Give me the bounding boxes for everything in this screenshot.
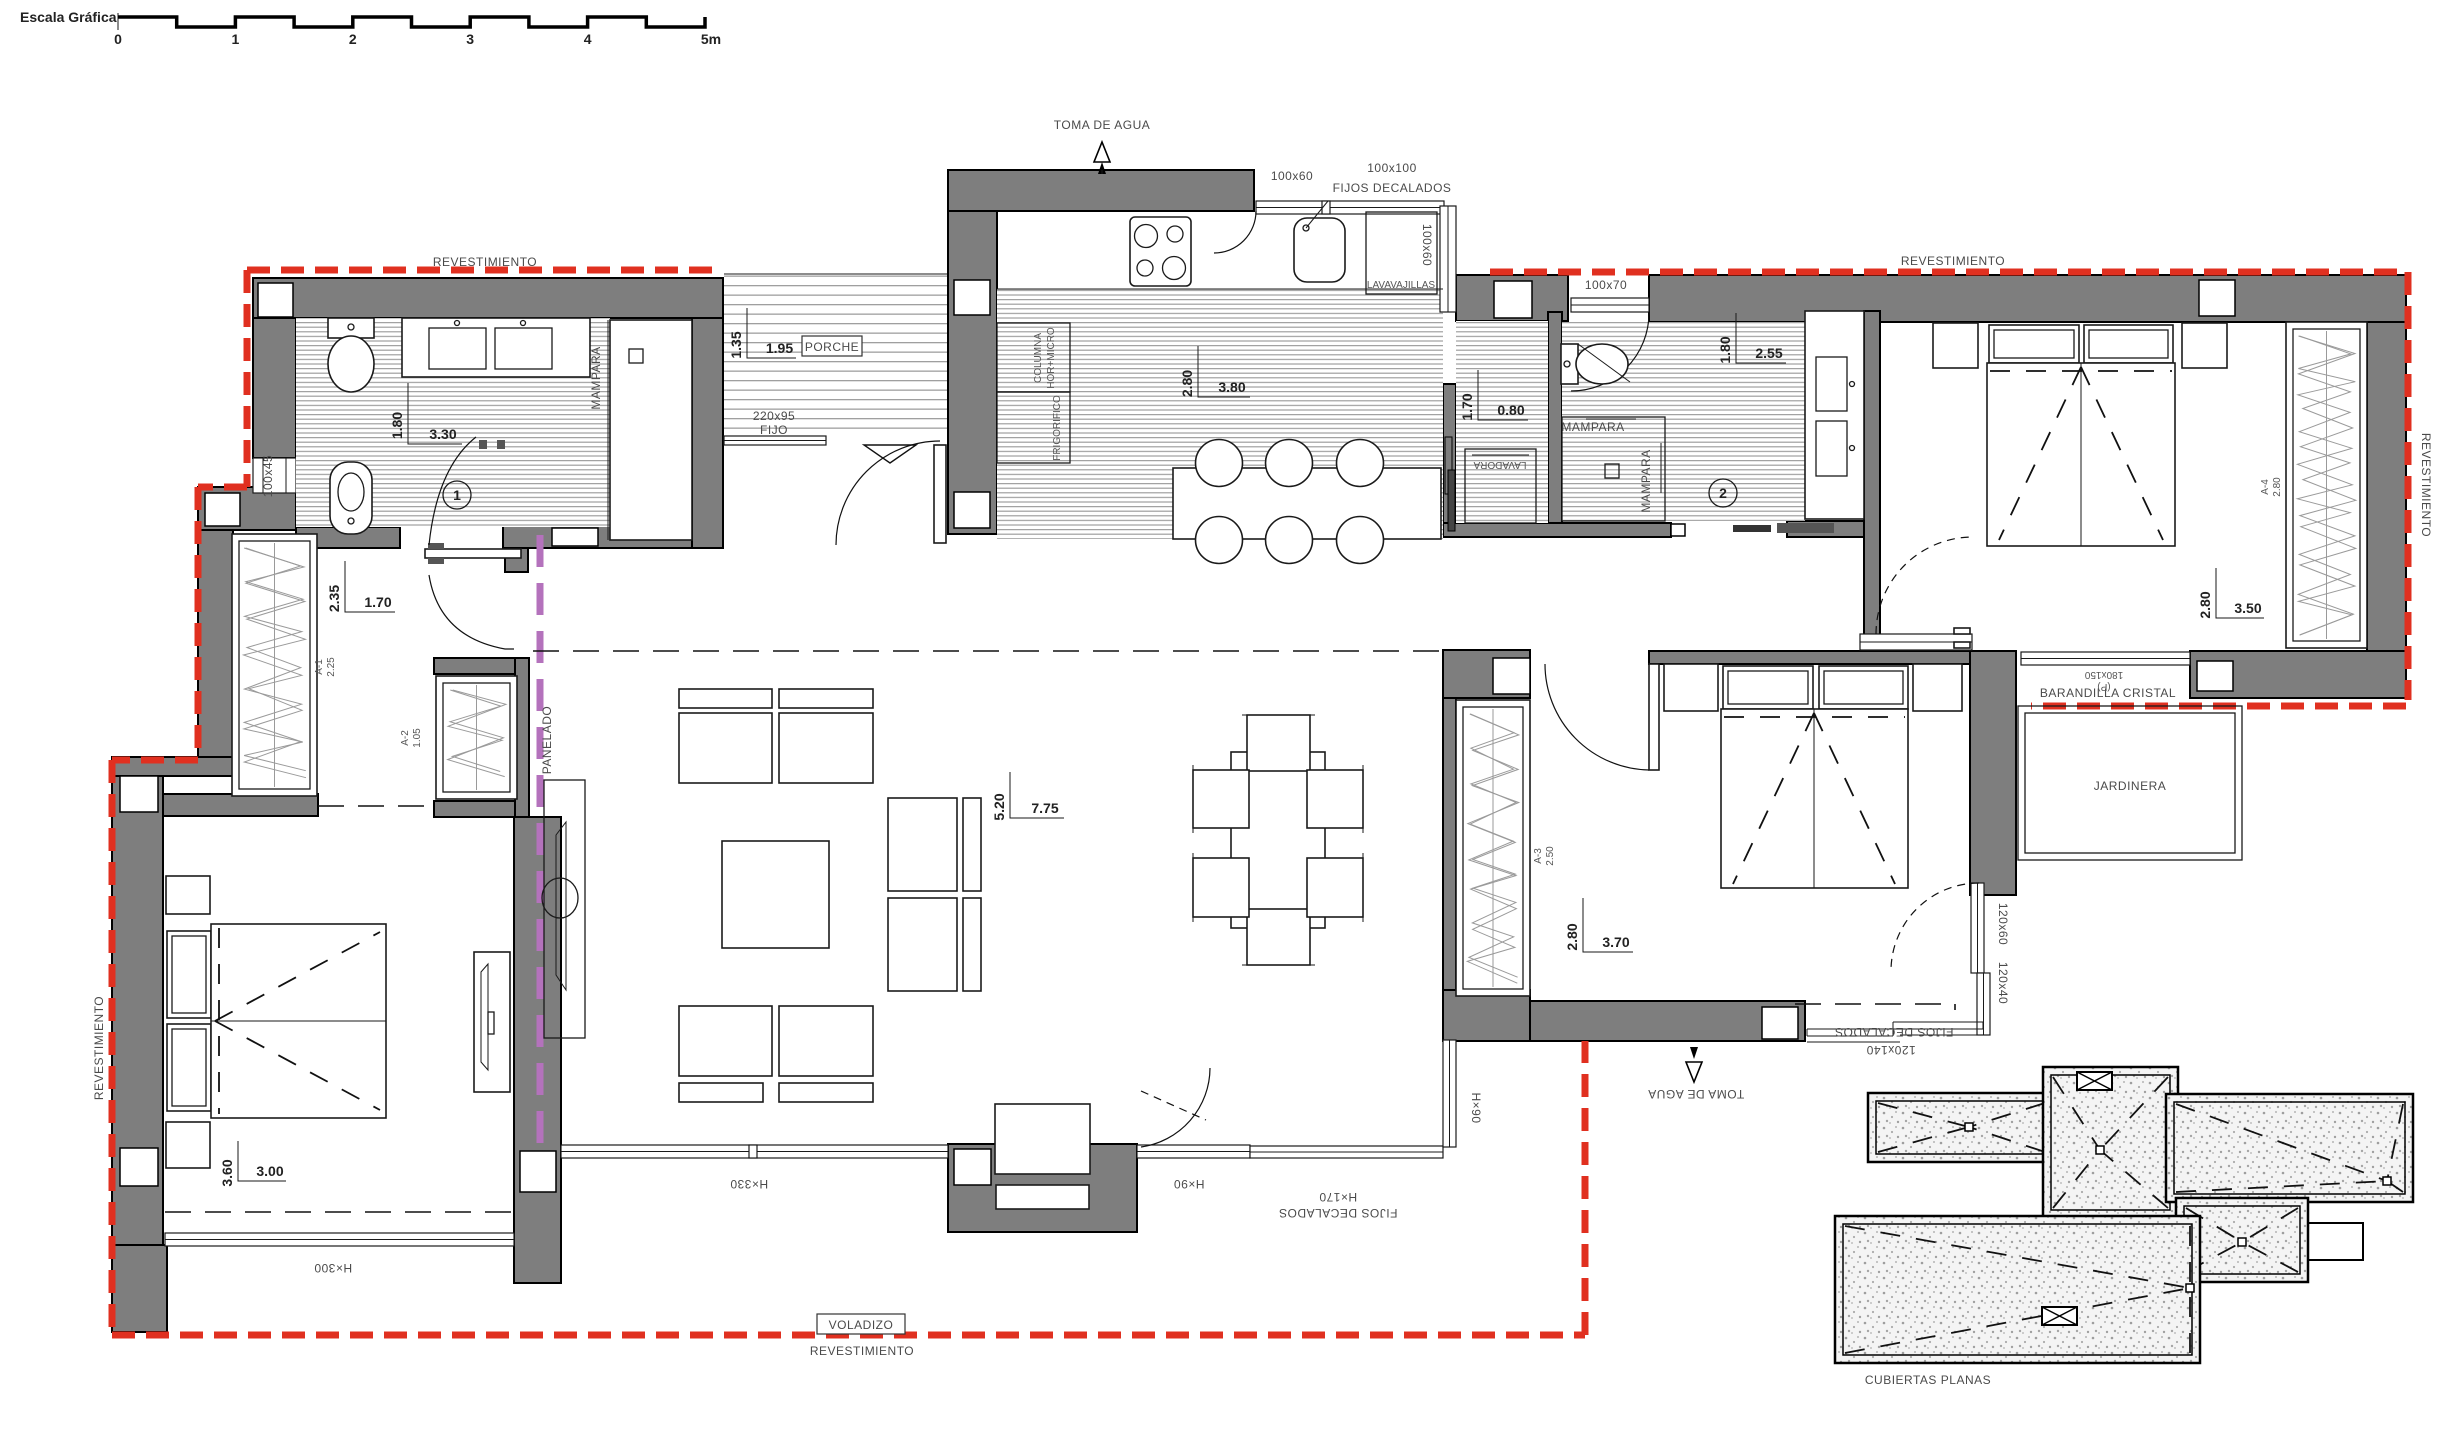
svg-text:H×90: H×90 [1173,1177,1204,1191]
svg-text:5.20: 5.20 [991,793,1007,820]
svg-text:Escala Gráfica: Escala Gráfica [20,9,117,25]
svg-text:1.80: 1.80 [1717,336,1733,363]
svg-text:2.80: 2.80 [1564,923,1580,950]
svg-text:100x45: 100x45 [261,455,275,497]
svg-text:2.80: 2.80 [2272,477,2283,497]
svg-text:3: 3 [466,31,474,47]
svg-text:1.80: 1.80 [389,412,405,439]
svg-text:H×300: H×300 [314,1261,352,1275]
svg-text:100x100: 100x100 [1367,161,1417,175]
svg-text:CUBIERTAS PLANAS: CUBIERTAS PLANAS [1865,1373,1991,1387]
svg-text:2: 2 [1719,485,1727,501]
svg-text:0: 0 [114,31,122,47]
svg-text:MAMPARA: MAMPARA [589,346,603,409]
svg-text:3.60: 3.60 [219,1159,235,1186]
svg-text:A-3: A-3 [1533,848,1544,864]
svg-text:PANELADO: PANELADO [540,706,554,774]
svg-text:REVESTIMIENTO: REVESTIMIENTO [1901,254,2005,268]
svg-text:LAVADORA: LAVADORA [1473,459,1526,470]
svg-text:2.55: 2.55 [1755,345,1782,361]
svg-text:120x40: 120x40 [1996,962,2010,1004]
svg-text:1.70: 1.70 [364,594,391,610]
svg-text:100x60: 100x60 [1420,224,1434,266]
svg-text:3.80: 3.80 [1218,379,1245,395]
svg-text:4: 4 [584,31,592,47]
svg-text:2.80: 2.80 [1179,370,1195,397]
svg-text:2: 2 [349,31,357,47]
svg-text:3.30: 3.30 [429,426,456,442]
svg-text:180x150: 180x150 [2084,669,2123,680]
svg-text:3.00: 3.00 [256,1163,283,1179]
svg-text:(P): (P) [2097,681,2110,692]
svg-text:2.80: 2.80 [2197,591,2213,618]
svg-text:VOLADIZO: VOLADIZO [829,1318,894,1332]
svg-text:5m: 5m [701,31,721,47]
svg-text:MAMPARA: MAMPARA [1639,449,1653,512]
svg-text:220x95: 220x95 [753,409,795,423]
svg-text:H×330: H×330 [730,1177,768,1191]
svg-text:MAMPARA: MAMPARA [1561,420,1624,434]
svg-text:1: 1 [232,31,240,47]
svg-text:FIJOS DECALADOS: FIJOS DECALADOS [1835,1025,1954,1039]
svg-text:3.70: 3.70 [1602,934,1629,950]
svg-text:1: 1 [453,487,461,503]
svg-text:100x70: 100x70 [1585,278,1627,292]
svg-text:1.35: 1.35 [728,331,744,358]
svg-text:FRIGORIFICO: FRIGORIFICO [1052,395,1063,461]
svg-text:REVESTIMIENTO: REVESTIMIENTO [92,996,106,1100]
svg-text:TOMA DE AGUA: TOMA DE AGUA [1648,1087,1744,1101]
svg-text:FIJOS DECALADOS: FIJOS DECALADOS [1333,181,1452,195]
svg-text:REVESTIMIENTO: REVESTIMIENTO [433,255,537,269]
svg-text:7.75: 7.75 [1031,800,1058,816]
svg-text:FIJO: FIJO [760,423,788,437]
svg-text:A-4: A-4 [2260,479,2271,495]
svg-text:120x140: 120x140 [1866,1043,1916,1057]
svg-text:REVESTIMIENTO: REVESTIMIENTO [810,1344,914,1358]
svg-text:2.25: 2.25 [326,657,337,677]
svg-text:120x60: 120x60 [1996,903,2010,945]
svg-text:100x60: 100x60 [1271,169,1313,183]
svg-text:TOMA DE AGUA: TOMA DE AGUA [1054,118,1150,132]
svg-text:1.95: 1.95 [766,340,793,356]
svg-text:A-1: A-1 [314,659,325,675]
svg-text:REVESTIMIENTO: REVESTIMIENTO [2419,433,2433,537]
svg-text:1.05: 1.05 [412,728,423,748]
svg-text:COLUMNA: COLUMNA [1033,333,1044,383]
svg-text:H×170: H×170 [1319,1190,1357,1204]
svg-text:FIJOS DECALADOS: FIJOS DECALADOS [1279,1206,1398,1220]
svg-text:1.70: 1.70 [1459,393,1475,420]
svg-text:PORCHE: PORCHE [805,340,859,354]
svg-text:A-2: A-2 [400,730,411,746]
svg-text:JARDINERA: JARDINERA [2094,779,2167,793]
svg-text:2.35: 2.35 [326,585,342,612]
svg-text:H×90: H×90 [1469,1092,1483,1123]
svg-text:0.80: 0.80 [1497,402,1524,418]
svg-text:3.50: 3.50 [2234,600,2261,616]
svg-text:2.50: 2.50 [1545,846,1556,866]
svg-text:LAVAVAJILLAS: LAVAVAJILLAS [1367,280,1436,291]
svg-text:HOR+MICRO: HOR+MICRO [1046,327,1057,389]
